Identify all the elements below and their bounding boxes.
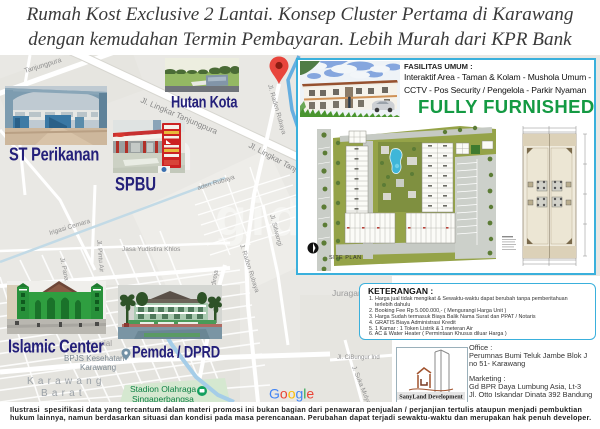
svg-text:SanyLand Development: SanyLand Development: [399, 394, 463, 401]
svg-text:gid: gid: [215, 189, 305, 247]
svg-text:Jasa Yudistira Khlos: Jasa Yudistira Khlos: [122, 246, 181, 253]
svg-text:Google: Google: [269, 386, 314, 402]
svg-text:Karawang: Karawang: [27, 376, 106, 387]
svg-text:Singaperbangsa: Singaperbangsa: [132, 394, 194, 402]
svg-text:Jl. CiBungur Ind: Jl. CiBungur Ind: [337, 355, 380, 361]
svg-text:Barat: Barat: [41, 388, 86, 399]
svg-text:Stadion Olahraga: Stadion Olahraga: [130, 384, 196, 394]
svg-text:Karawang: Karawang: [80, 363, 116, 372]
